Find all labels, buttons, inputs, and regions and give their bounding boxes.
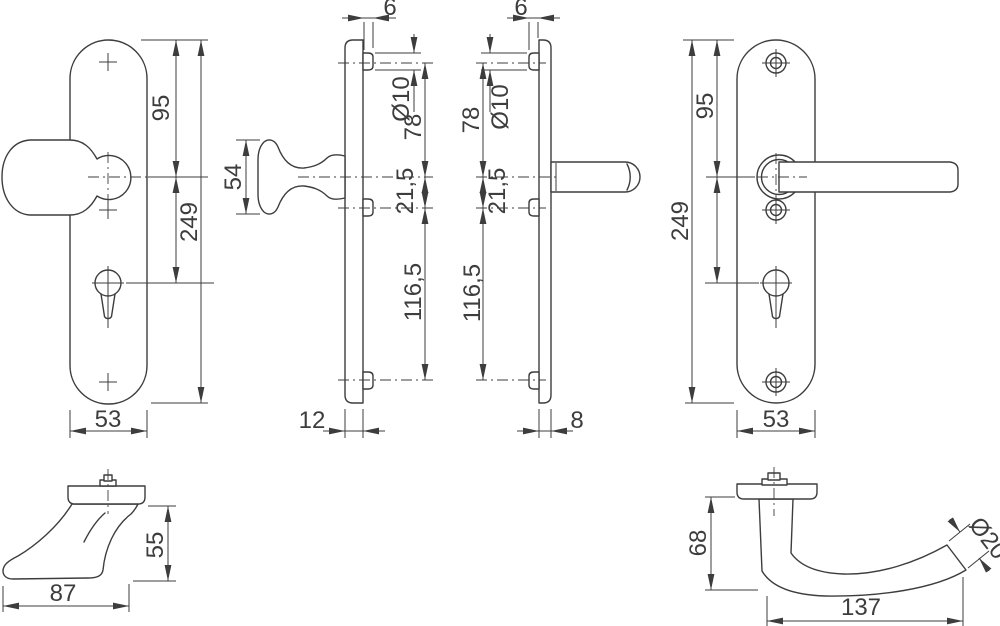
dim-label-87: 87 [50, 580, 77, 607]
dim-label-116-5: 116,5 [459, 264, 486, 322]
knob-plate-side-view: 54 6 Ø10 78 21,5 116,5 12 [220, 0, 433, 438]
lever-body [759, 499, 966, 596]
dim-label-68: 68 [685, 530, 712, 557]
dim-label-dia10: Ø10 [487, 84, 514, 129]
knob-body [3, 504, 138, 579]
dim-label-6: 6 [514, 0, 527, 21]
dim-label-78: 78 [458, 107, 485, 134]
dim-label-116-5: 116,5 [400, 263, 427, 321]
lever-plate-side-view: 6 Ø10 78 21,5 116,5 8 [458, 0, 640, 438]
door-fitting-dimension-drawing: 95 249 53 [0, 0, 1000, 626]
technical-drawing-page: 95 249 53 [0, 0, 1000, 626]
plate-outline [539, 40, 551, 403]
knob-plate-front-view: 95 249 53 [2, 40, 214, 438]
dim-label-249: 249 [176, 202, 203, 242]
dim-label-21-5: 21,5 [484, 168, 511, 215]
dim-label-54: 54 [220, 164, 247, 191]
dim-label-55: 55 [142, 532, 169, 559]
dim-label-249: 249 [667, 201, 694, 241]
dim-label-78: 78 [400, 114, 427, 141]
dim-label-137: 137 [841, 594, 881, 621]
knob-rose [68, 486, 145, 504]
knob-profile-view: 55 87 [3, 469, 176, 612]
dim-label-95: 95 [148, 95, 175, 122]
dim-label-8: 8 [570, 407, 583, 434]
plate-outline [345, 40, 363, 403]
dim-label-53: 53 [763, 406, 790, 433]
dim-label-53: 53 [95, 406, 122, 433]
fixing-pegs [529, 53, 539, 389]
dim-label-95: 95 [692, 93, 719, 120]
dim-label-6: 6 [383, 0, 396, 21]
plate-outline [70, 40, 147, 404]
lever-rose [737, 484, 817, 499]
lever-grip-stub [551, 162, 640, 192]
dim-label-12: 12 [299, 407, 326, 434]
dimension-lines [481, 18, 573, 438]
lever-plate-front-view: 95 249 53 [667, 40, 958, 438]
lever-profile-view: 68 137 Ø20 [685, 467, 1000, 626]
dim-label-21-5: 21,5 [392, 168, 419, 215]
fixing-pegs [363, 53, 373, 389]
